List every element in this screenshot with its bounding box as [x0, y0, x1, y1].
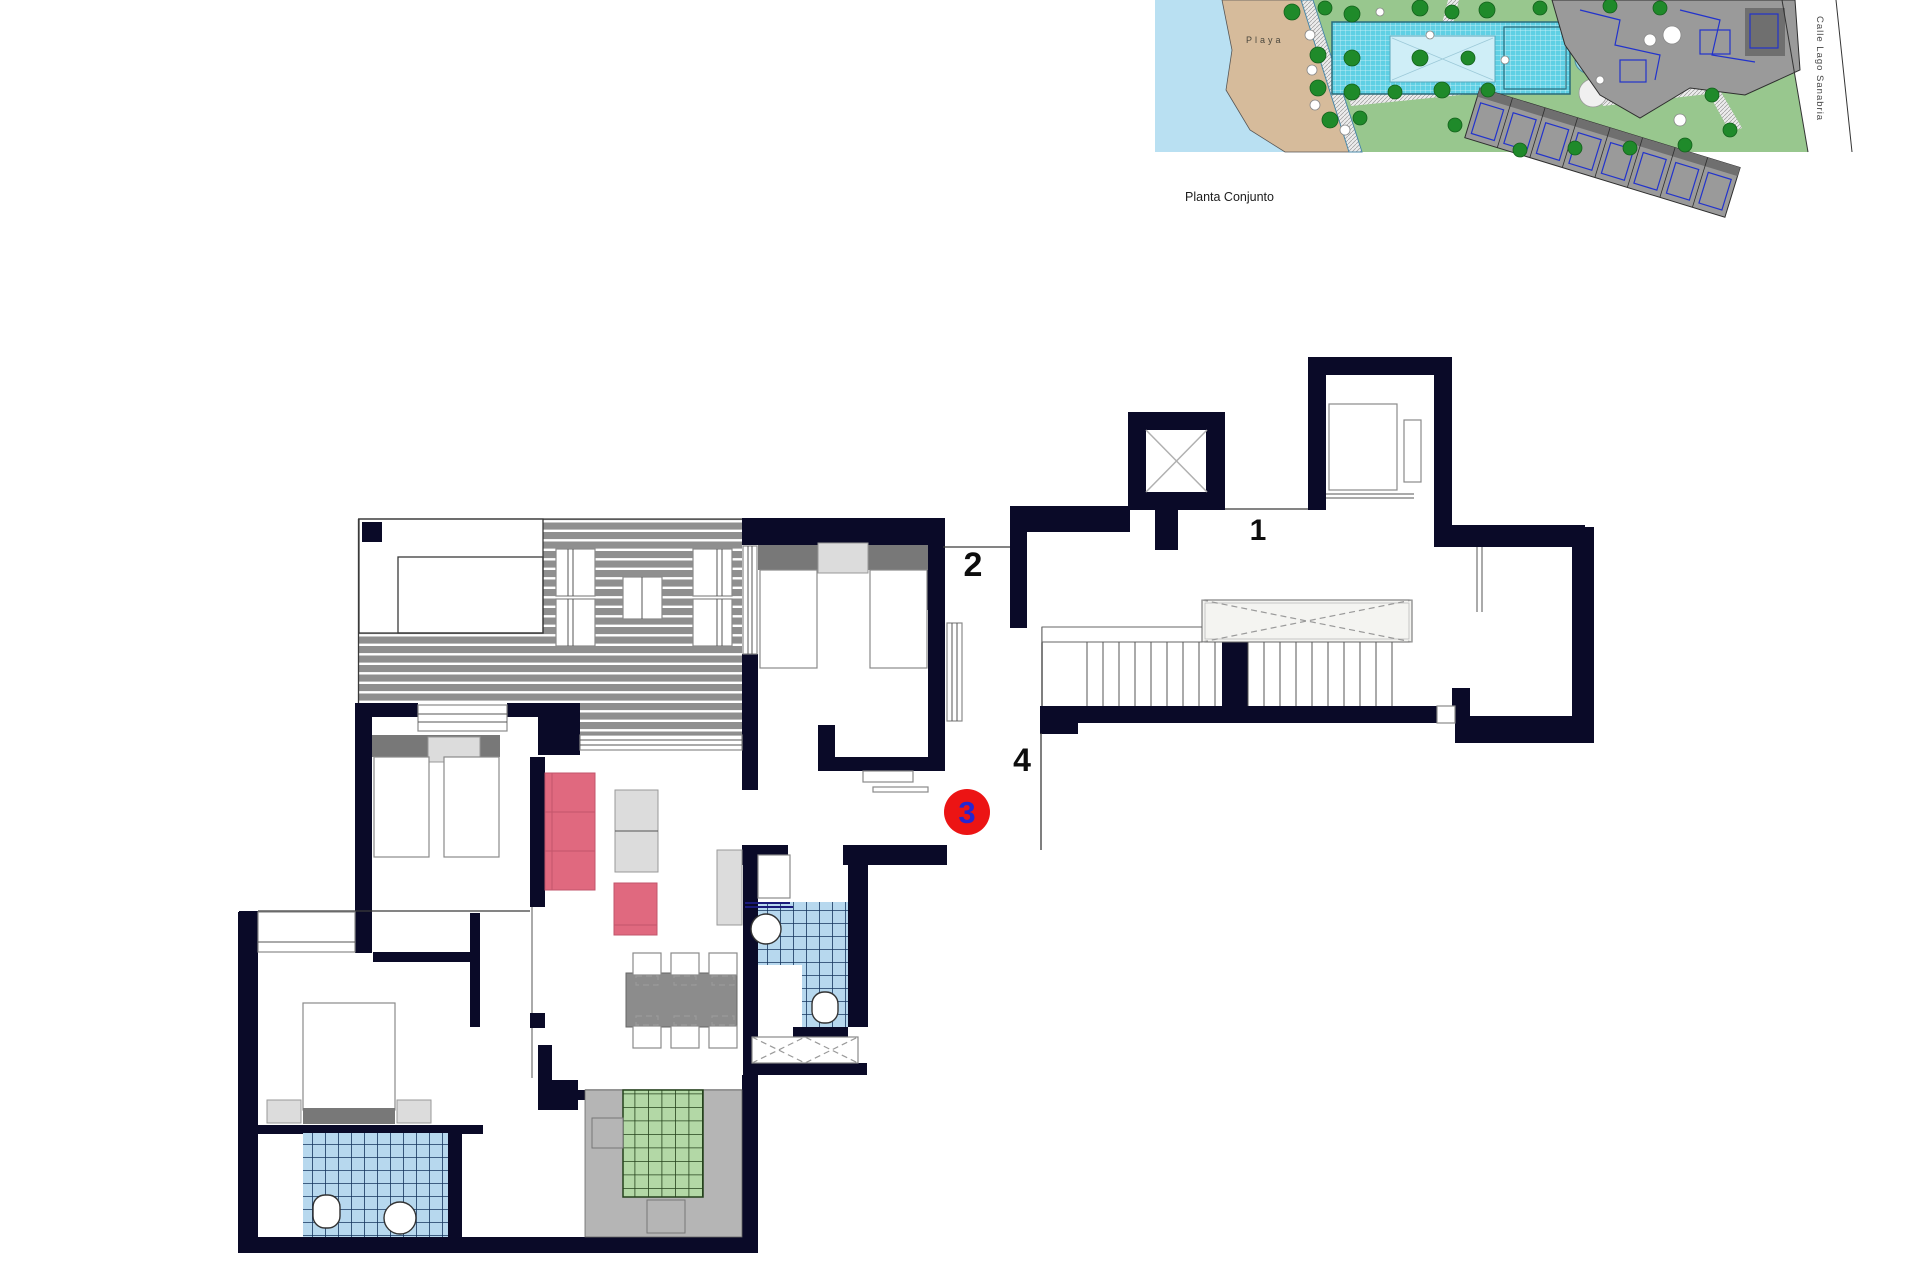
- bedroom-lower-left: [267, 1003, 431, 1124]
- unit-2-label: 2: [955, 546, 991, 585]
- page: 1 2 4 3 Planta Conjunto Playa Calle Lago…: [0, 0, 1920, 1280]
- floor-plan: [238, 357, 1594, 1253]
- wardrobe: [752, 1037, 858, 1063]
- patio: [585, 1090, 742, 1237]
- unit-3-number: 3: [958, 797, 975, 828]
- deck-area-lower: [358, 633, 543, 703]
- unit-3-badge: 3: [944, 789, 990, 835]
- unit-4-label: 4: [1004, 742, 1040, 779]
- deck-table: [623, 577, 662, 619]
- living-room: [532, 773, 742, 1078]
- terrace-inner: [398, 557, 543, 633]
- toilet: [812, 992, 838, 1023]
- walls: [238, 357, 1594, 1253]
- terrace-pillar: [362, 522, 382, 542]
- terrace-deck: [358, 519, 742, 735]
- elevator-shaft: [1146, 430, 1207, 492]
- dining-table: [626, 973, 737, 1027]
- bathroom-lower-left: [303, 1133, 448, 1237]
- terrace-open: [359, 519, 543, 633]
- bedroom-left: [258, 735, 500, 952]
- bedroom-top: [758, 543, 928, 792]
- closet-shelves: [258, 912, 355, 952]
- main-pool: [1332, 22, 1570, 94]
- toilet: [313, 1195, 340, 1228]
- plan-drawing: [0, 0, 1920, 1280]
- armchair: [614, 883, 657, 935]
- sink: [384, 1202, 416, 1234]
- street-label: Calle Lago Sanabria: [1814, 16, 1825, 121]
- site-plan-caption: Planta Conjunto: [1185, 190, 1274, 204]
- unit-1-label: 1: [1240, 514, 1276, 548]
- sink: [751, 914, 781, 944]
- beach-label: Playa: [1246, 35, 1284, 45]
- site-plan: [1155, 0, 1852, 217]
- tv-cabinet: [717, 850, 742, 925]
- elevator-machine-room: [1326, 404, 1421, 498]
- patio-rug: [623, 1090, 703, 1197]
